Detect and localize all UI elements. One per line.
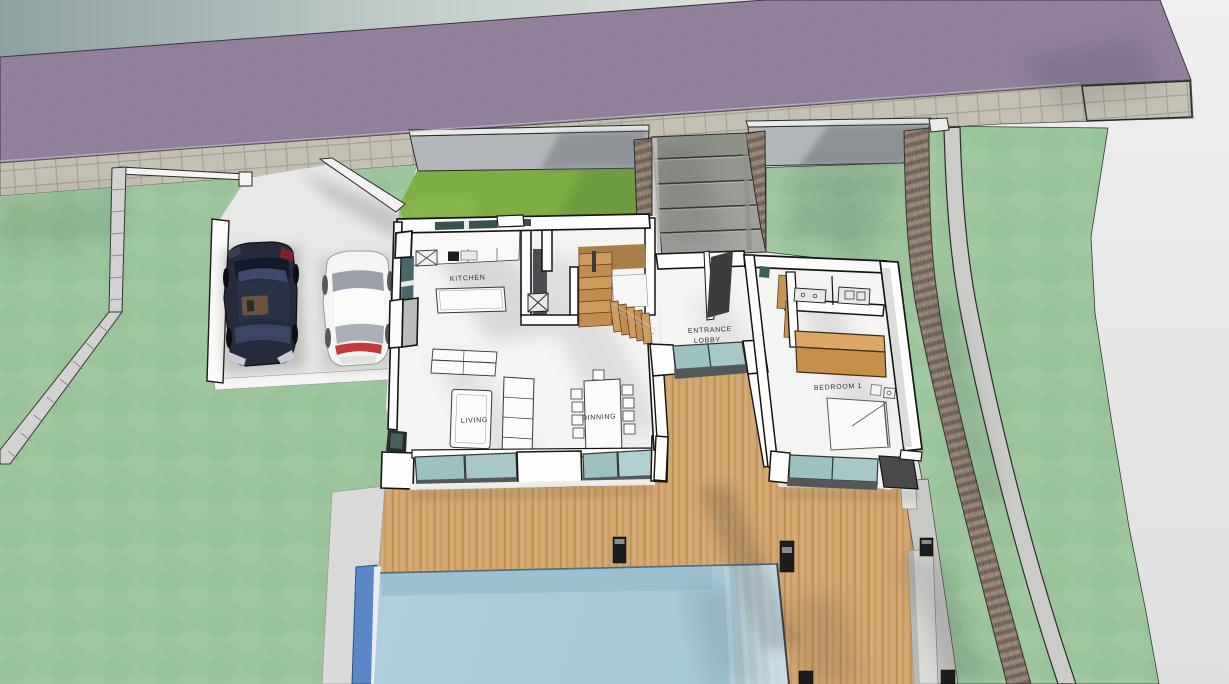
svg-text:LOBBY: LOBBY [694,337,721,345]
svg-text:LIVING: LIVING [461,417,488,425]
